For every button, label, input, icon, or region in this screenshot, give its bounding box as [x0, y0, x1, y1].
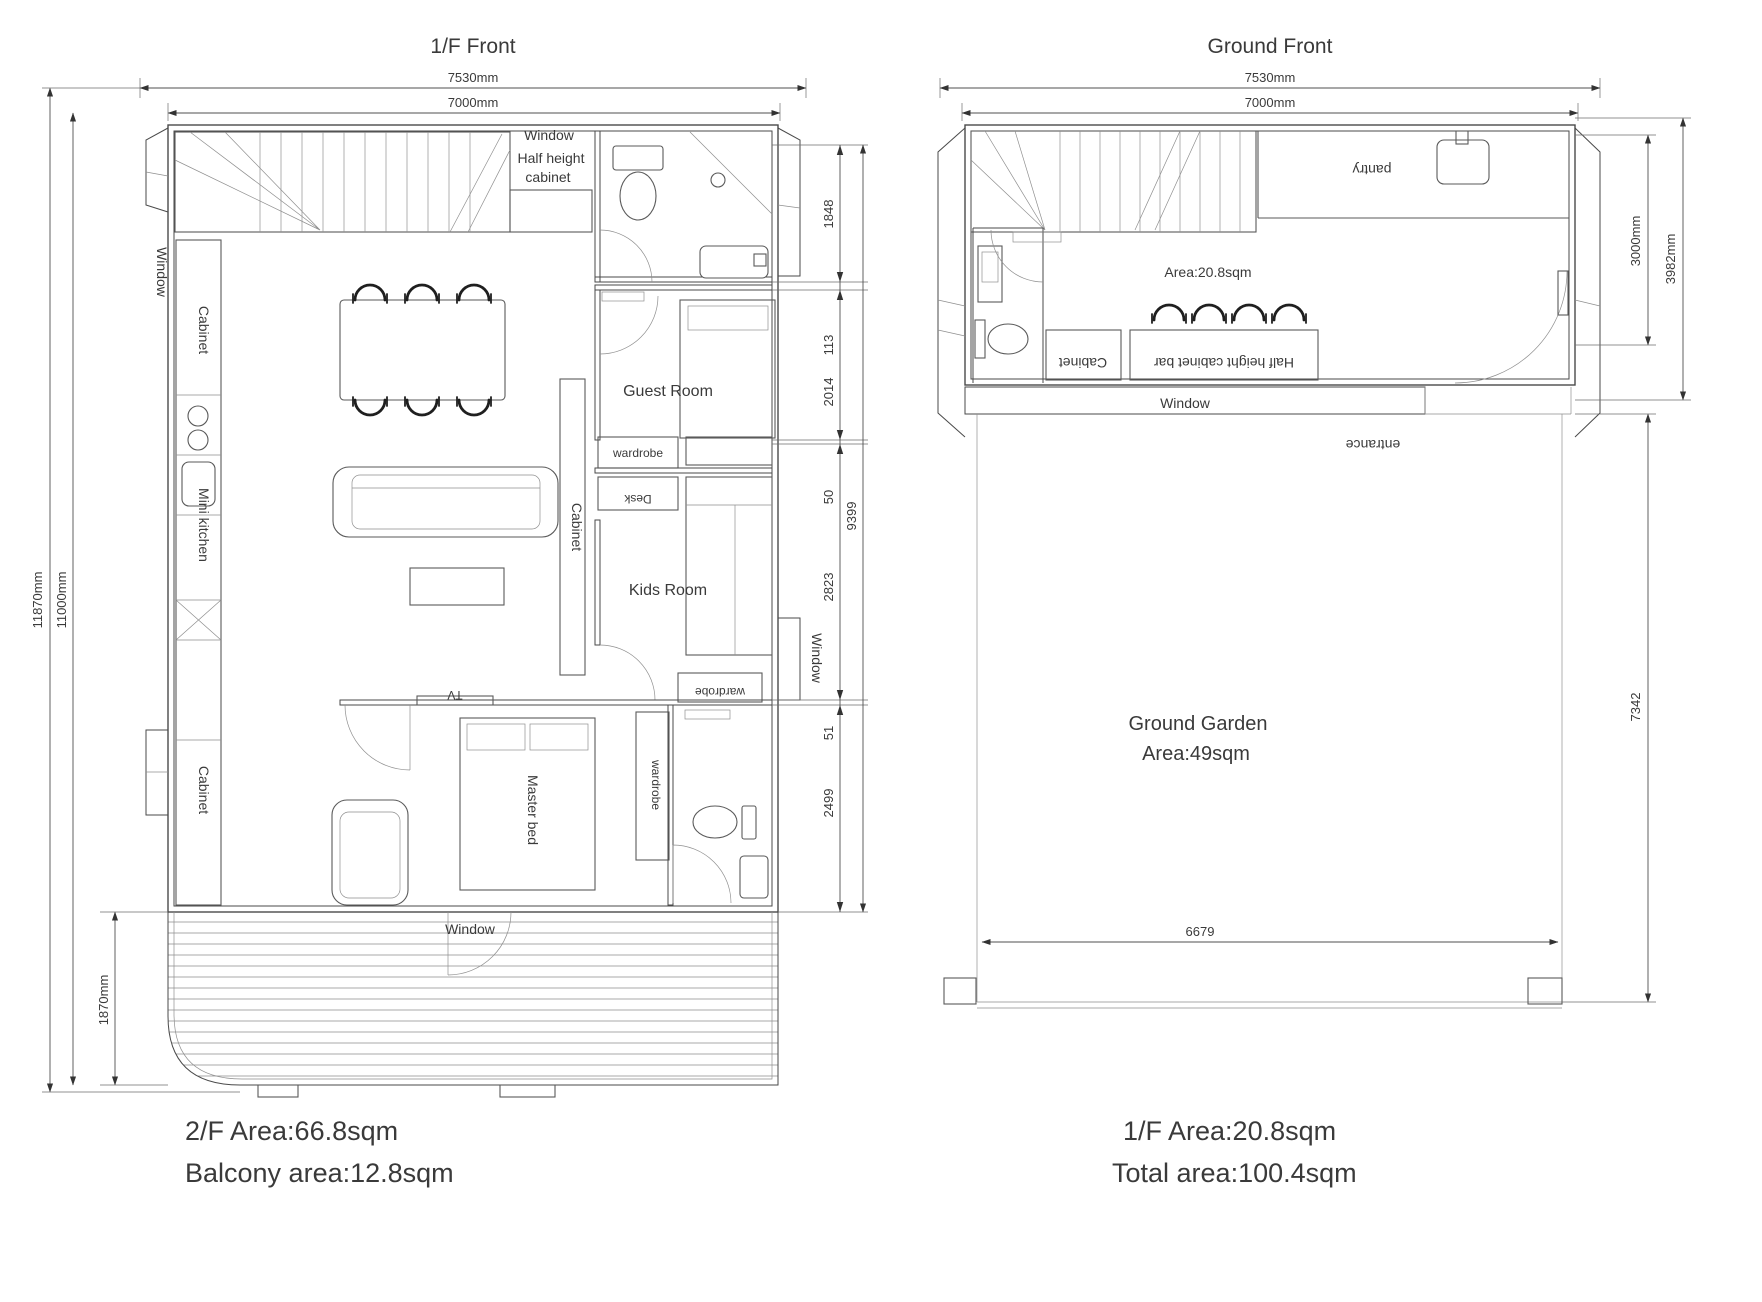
coffee-table: [410, 568, 504, 605]
label-kids-room: Kids Room: [629, 582, 707, 599]
ground-cabinet: [1046, 330, 1121, 380]
master-bathroom: [673, 710, 768, 903]
label-wardrobe-kids: wardrobe: [695, 685, 746, 699]
appliance-icon: [176, 600, 221, 640]
label-pantry: pantry: [1353, 162, 1392, 178]
ground-bathroom: [973, 228, 1061, 383]
burner-icon: [188, 406, 208, 426]
right-note-area: 1/F Area:20.8sqm: [1123, 1116, 1336, 1146]
guest-room: [595, 285, 775, 473]
basin-icon: [740, 856, 768, 898]
left-dim-widths: 7530mm 7000mm: [140, 70, 806, 121]
right-dims: 6679 3000mm 3982mm 7342: [982, 118, 1691, 1002]
toilet-tank-icon: [613, 146, 663, 170]
left-building-walls: [146, 125, 800, 912]
dining-set: [340, 285, 505, 415]
master-bedroom: [332, 696, 673, 905]
label-master-bed: Master bed: [525, 775, 541, 845]
dim-11000: 11000mm: [54, 572, 69, 629]
dim-2499: 2499: [821, 789, 836, 818]
left-stairs: [175, 132, 510, 232]
shower-head-icon: [711, 173, 725, 187]
left-plan: 1/F Front 7530mm 7000mm: [30, 35, 868, 1188]
toilet-tank-icon: [975, 320, 985, 358]
label-bar: Half height cabinet bar: [1154, 355, 1294, 371]
label-desk: Desk: [623, 492, 651, 506]
basin-icon: [978, 246, 1002, 302]
toilet-bowl-icon: [988, 324, 1028, 354]
label-area-208: Area:20.8sqm: [1164, 264, 1251, 280]
left-dim-heights: 11870mm 11000mm 1870mm: [30, 88, 240, 1092]
dim-7000-left: 7000mm: [448, 95, 499, 110]
kids-room: [340, 477, 772, 705]
dim-7342: 7342: [1628, 693, 1643, 722]
dim-11870: 11870mm: [30, 572, 45, 629]
dim-6679: 6679: [1186, 924, 1215, 939]
label-half-height-2: cabinet: [525, 169, 570, 185]
toilet-bowl-icon: [620, 172, 656, 220]
label-window-left: Window: [154, 247, 170, 298]
label-garden-title: Ground Garden: [1129, 713, 1268, 735]
pantry-sink-icon: [1437, 140, 1489, 184]
ground-garden: [944, 414, 1562, 1008]
armchair: [332, 800, 408, 905]
label-tv: TV: [447, 688, 462, 702]
right-stairs: [971, 131, 1256, 232]
label-cabinet-left-top: Cabinet: [196, 306, 212, 354]
right-plan-title: Ground Front: [1208, 35, 1333, 58]
dim-2823: 2823: [821, 573, 836, 602]
dim-113: 113: [821, 335, 836, 356]
left-dim-chain: 1848 113 2014 50 2823 51 2499 9399: [772, 145, 868, 912]
burner-icon: [188, 430, 208, 450]
label-entrance: entrance: [1346, 437, 1401, 453]
dim-7530-left: 7530mm: [448, 70, 499, 85]
guest-bed: [680, 300, 775, 438]
dim-7530-right: 7530mm: [1245, 70, 1296, 85]
dim-9399: 9399: [844, 502, 859, 531]
label-window-top: Window: [524, 127, 575, 143]
floor-plan-canvas: 1/F Front 7530mm 7000mm: [0, 0, 1762, 1302]
label-wardrobe-guest: wardrobe: [612, 446, 663, 460]
half-height-cabinet: [510, 190, 592, 232]
dim-51: 51: [821, 726, 836, 740]
left-note-balcony: Balcony area:12.8sqm: [185, 1158, 454, 1188]
balcony: [168, 912, 778, 1097]
sofa: [333, 467, 558, 537]
sink-icon: [700, 246, 768, 278]
left-bathroom-top: [595, 131, 772, 282]
dim-3982: 3982mm: [1663, 234, 1678, 285]
garden-post: [944, 978, 976, 1004]
kids-bed: [686, 477, 772, 655]
dim-7000-right: 7000mm: [1245, 95, 1296, 110]
label-cabinet-left-bottom: Cabinet: [196, 766, 212, 814]
label-mini-kitchen: Mini kitchen: [196, 488, 212, 562]
dim-50: 50: [821, 490, 836, 504]
label-cabinet-right: Cabinet: [1059, 355, 1107, 371]
dim-1870: 1870mm: [96, 975, 111, 1026]
toilet-tank-icon: [742, 806, 756, 839]
label-window-right: Window: [809, 633, 825, 684]
ground-window-band: [965, 387, 1571, 414]
garden-post: [1528, 978, 1562, 1004]
toilet-bowl-icon: [693, 806, 737, 838]
pantry-area: [1258, 131, 1569, 218]
shower-screen-icon: [690, 132, 772, 214]
door-arc: [600, 230, 652, 282]
deck-lines: [168, 922, 778, 1076]
label-half-height-1: Half height: [518, 150, 585, 166]
right-building-walls: [938, 125, 1600, 437]
left-note-area: 2/F Area:66.8sqm: [185, 1116, 398, 1146]
bar-chairs: [1152, 305, 1306, 323]
living-area: [333, 467, 558, 605]
right-plan: Ground Front 7530mm 7000mm: [938, 35, 1691, 1188]
label-wardrobe-master: wardrobe: [649, 759, 663, 810]
floor-plan-sheet: 1/F Front 7530mm 7000mm: [0, 0, 1762, 1302]
dining-table: [340, 300, 505, 400]
dim-2014: 2014: [821, 378, 836, 407]
dim-3000: 3000mm: [1628, 216, 1643, 267]
label-guest-room: Guest Room: [623, 383, 713, 400]
entrance-door: [1455, 271, 1568, 383]
half-height-cabinet-bar: [1130, 330, 1318, 380]
dim-1848: 1848: [821, 200, 836, 229]
left-plan-title: 1/F Front: [430, 35, 515, 58]
label-window-ground: Window: [1160, 395, 1211, 411]
label-garden-area: Area:49sqm: [1142, 743, 1250, 765]
right-note-total: Total area:100.4sqm: [1112, 1158, 1357, 1188]
label-window-bottom: Window: [445, 921, 496, 937]
right-dim-widths: 7530mm 7000mm: [940, 70, 1600, 121]
label-cabinet-mid: Cabinet: [569, 503, 585, 551]
